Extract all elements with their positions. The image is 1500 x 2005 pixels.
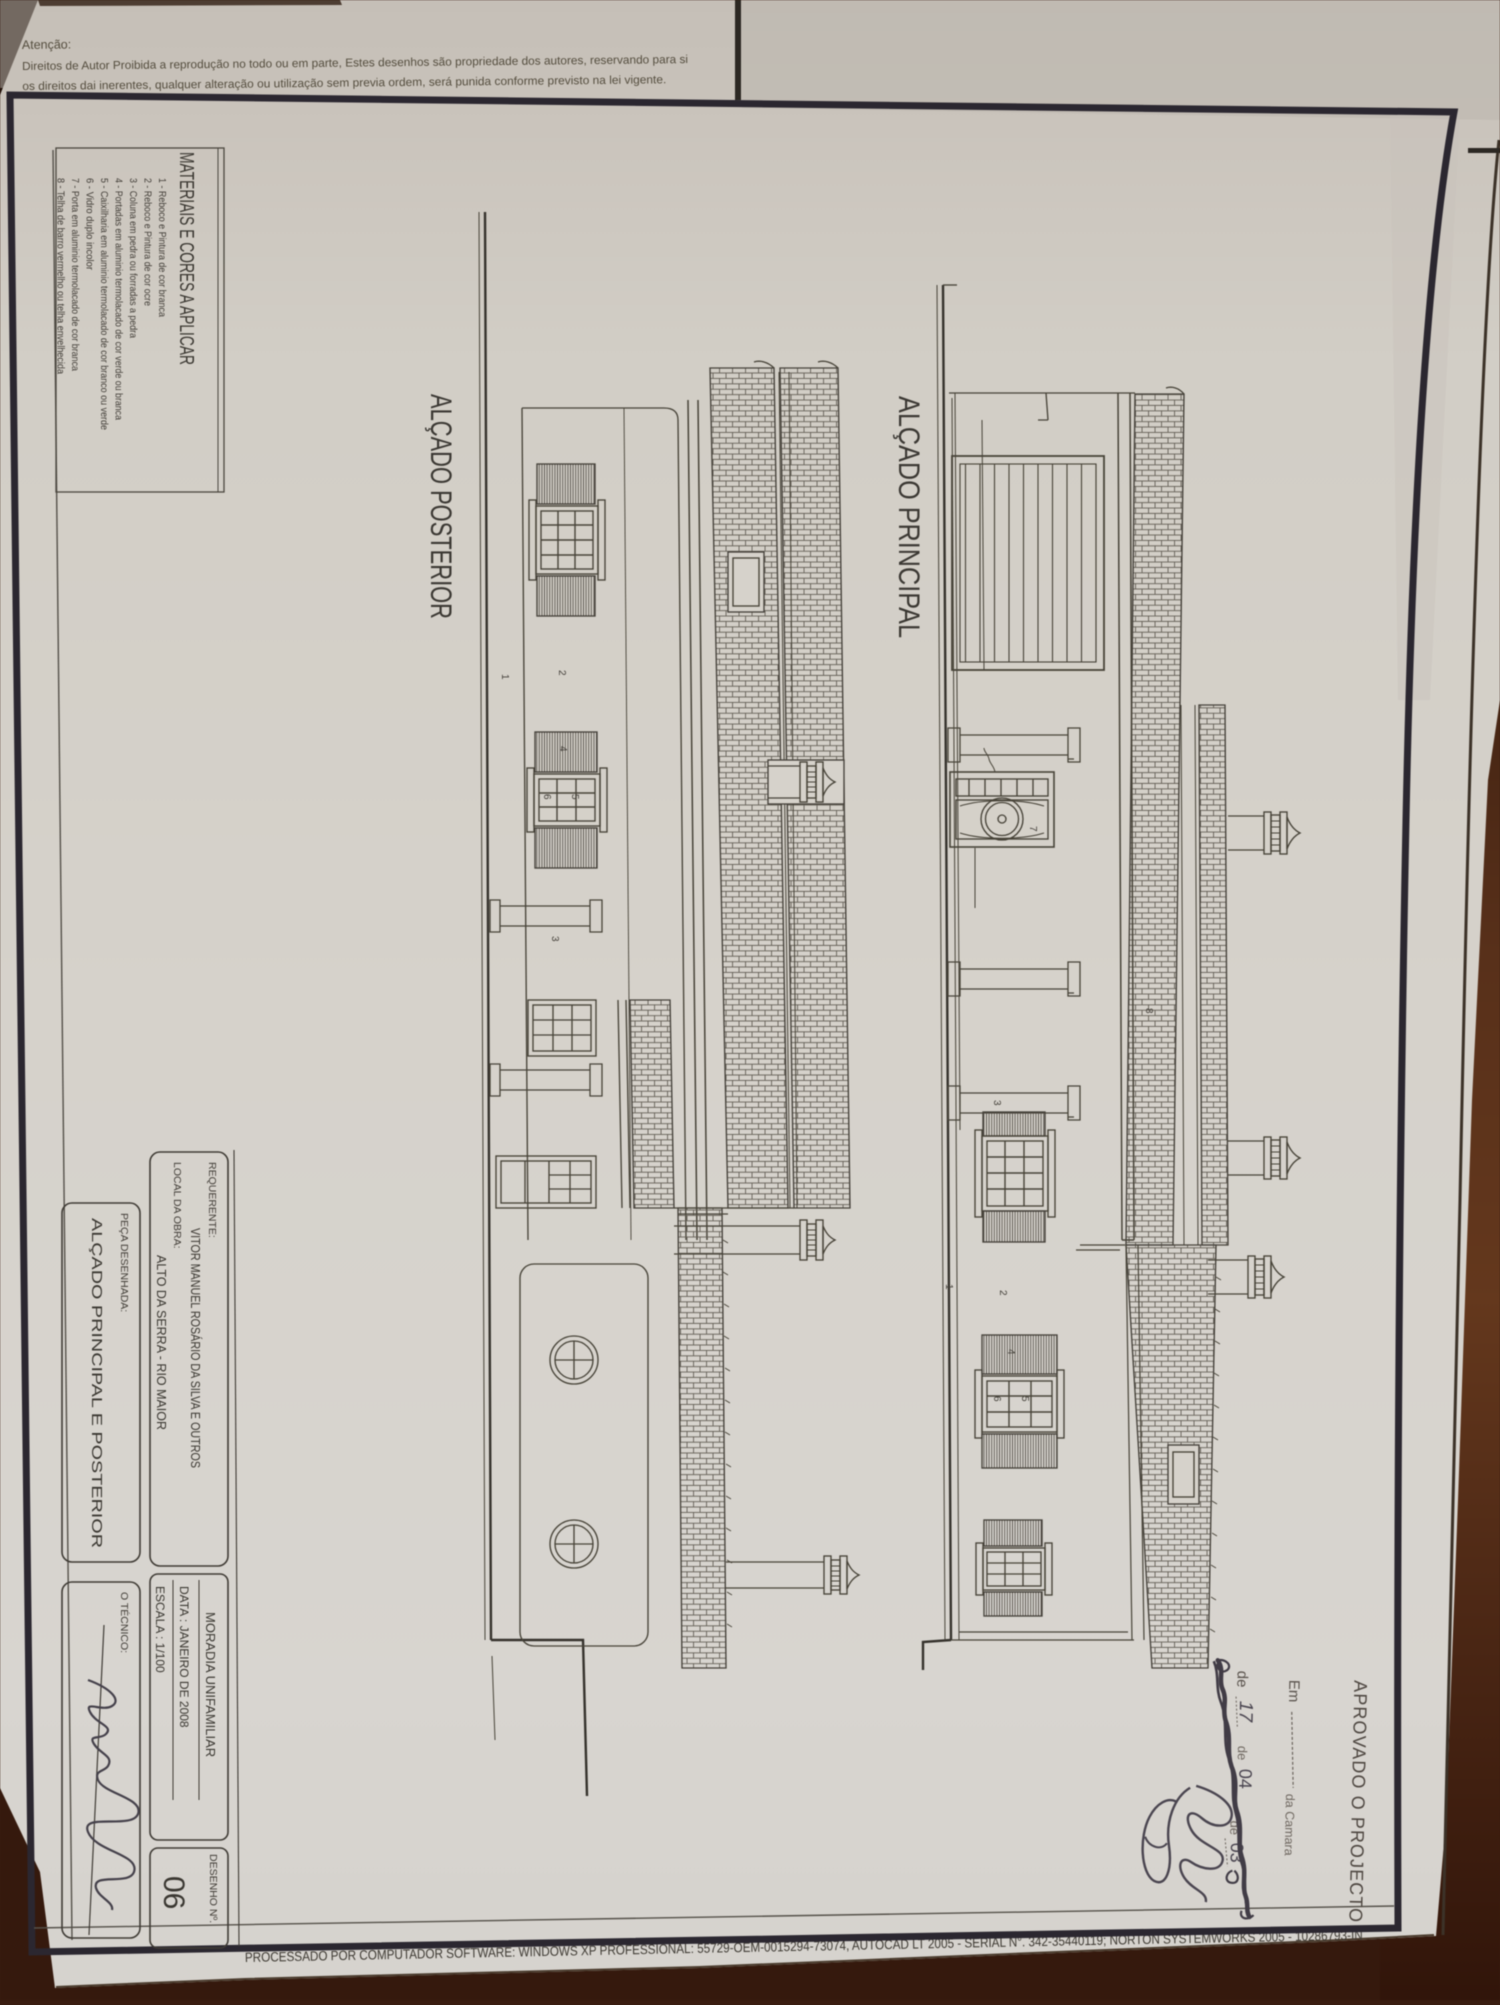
svg-text:ALÇADO PRINCIPAL: ALÇADO PRINCIPAL bbox=[892, 396, 925, 638]
svg-text:2 - Reboco e Pintura de cor oc: 2 - Reboco e Pintura de cor ocre bbox=[142, 178, 154, 306]
svg-text:1: 1 bbox=[499, 674, 510, 680]
svg-text:4 - Portadas em aluminio termo: 4 - Portadas em aluminio termolacado de … bbox=[113, 178, 125, 420]
svg-text:7: 7 bbox=[1027, 826, 1038, 832]
svg-text:MORADIA UNIFAMILIAR: MORADIA UNIFAMILIAR bbox=[203, 1612, 218, 1757]
svg-text:04: 04 bbox=[1235, 1769, 1255, 1789]
svg-text:ALTO DA SERRA - RIO MAIOR: ALTO DA SERRA - RIO MAIOR bbox=[154, 1255, 168, 1430]
svg-text:de: de bbox=[1235, 1746, 1250, 1761]
svg-text:2: 2 bbox=[556, 670, 567, 676]
svg-text:8 - Telha de barro vermelho ou: 8 - Telha de barro vermelho ou telha env… bbox=[55, 178, 67, 374]
svg-text:LOCAL DA OBRA:: LOCAL DA OBRA: bbox=[171, 1162, 183, 1249]
svg-text:7 - Porta em aluminio termolac: 7 - Porta em aluminio termolacado de cor… bbox=[69, 178, 81, 371]
svg-text:4: 4 bbox=[557, 746, 568, 752]
svg-text:8: 8 bbox=[1143, 1008, 1154, 1014]
svg-text:1: 1 bbox=[943, 1284, 954, 1290]
svg-text:3: 3 bbox=[991, 1100, 1002, 1106]
svg-text:de: de bbox=[1233, 1671, 1250, 1688]
svg-text:5: 5 bbox=[569, 794, 580, 800]
svg-text:DATA : JANEIRO DE 2008: DATA : JANEIRO DE 2008 bbox=[177, 1586, 191, 1728]
svg-text:06: 06 bbox=[157, 1876, 190, 1909]
svg-text:da Camara: da Camara bbox=[1282, 1794, 1297, 1856]
svg-text:MATERIAIS E CORES A APLICAR: MATERIAIS E CORES A APLICAR bbox=[175, 152, 197, 365]
svg-text:VITOR MANUEL ROSÁRIO DA SILVA: VITOR MANUEL ROSÁRIO DA SILVA E OUTROS bbox=[188, 1228, 203, 1468]
svg-text:5 - Caixilharia em aluminio te: 5 - Caixilharia em aluminio termolacado … bbox=[98, 178, 110, 430]
svg-text:DESENHO Nº.: DESENHO Nº. bbox=[207, 1854, 219, 1923]
svg-text:O TÉCNICO:: O TÉCNICO: bbox=[118, 1592, 131, 1653]
svg-text:5: 5 bbox=[1019, 1396, 1030, 1402]
svg-text:PEÇA DESENHADA:: PEÇA DESENHADA: bbox=[118, 1213, 130, 1312]
svg-text:ESCALA : 1/100: ESCALA : 1/100 bbox=[153, 1586, 167, 1673]
svg-text:Em: Em bbox=[1285, 1680, 1302, 1703]
svg-text:REQUERENTE:: REQUERENTE: bbox=[206, 1162, 218, 1238]
svg-text:6: 6 bbox=[541, 794, 552, 800]
svg-text:3 - Coluna em pedra ou forrada: 3 - Coluna em pedra ou forradas a pedra bbox=[127, 178, 139, 338]
svg-text:17: 17 bbox=[1234, 1701, 1255, 1724]
svg-text:ALÇADO POSTERIOR: ALÇADO POSTERIOR bbox=[424, 394, 457, 619]
svg-text:2: 2 bbox=[997, 1290, 1008, 1296]
svg-text:6 - Vidro duplo incolor: 6 - Vidro duplo incolor bbox=[84, 178, 96, 270]
svg-text:6: 6 bbox=[991, 1396, 1002, 1402]
svg-text:1 - Reboco e Pintura de cor br: 1 - Reboco e Pintura de cor branca bbox=[156, 178, 168, 317]
svg-text:3: 3 bbox=[549, 936, 560, 942]
svg-text:Atenção:: Atenção: bbox=[22, 37, 71, 52]
svg-text:4: 4 bbox=[1005, 1349, 1016, 1355]
svg-text:ALÇADO PRINCIPAL E POSTERIOR: ALÇADO PRINCIPAL E POSTERIOR bbox=[88, 1218, 105, 1548]
